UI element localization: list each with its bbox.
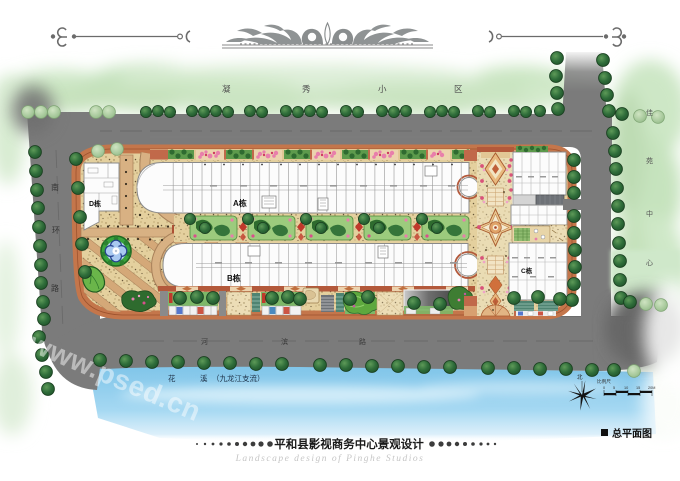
- svg-text:北: 北: [577, 373, 583, 381]
- svg-text:Landscape design of Pinghe Stu: Landscape design of Pinghe Studios: [235, 453, 425, 464]
- svg-text:溪: 溪: [200, 373, 208, 383]
- svg-text:区: 区: [454, 84, 463, 94]
- svg-text:路: 路: [51, 283, 59, 293]
- svg-text:10: 10: [624, 386, 628, 390]
- svg-text:佳: 佳: [646, 108, 653, 117]
- svg-text:中: 中: [646, 209, 653, 218]
- svg-text:（九龙江支流）: （九龙江支流）: [212, 373, 265, 383]
- svg-text:滨: 滨: [281, 337, 288, 346]
- svg-text:南: 南: [51, 182, 59, 192]
- svg-text:路: 路: [359, 337, 366, 346]
- svg-text:总平面图: 总平面图: [612, 427, 652, 440]
- svg-text:平和县影视商务中心景观设计: 平和县影视商务中心景观设计: [274, 437, 424, 451]
- svg-text:比例尺: 比例尺: [597, 378, 611, 385]
- svg-text:秀: 秀: [302, 84, 311, 94]
- svg-text:B栋: B栋: [227, 273, 241, 283]
- svg-text:心: 心: [646, 259, 653, 267]
- svg-text:小: 小: [378, 84, 387, 94]
- svg-text:D栋: D栋: [89, 199, 101, 208]
- svg-text:5: 5: [613, 386, 615, 390]
- svg-text:0: 0: [603, 386, 605, 390]
- svg-text:C栋: C栋: [521, 266, 533, 275]
- svg-text:花: 花: [168, 373, 176, 383]
- svg-text:环: 环: [52, 226, 60, 235]
- svg-text:A栋: A栋: [233, 198, 247, 208]
- svg-text:苑: 苑: [646, 156, 653, 165]
- svg-text:凝: 凝: [222, 84, 231, 94]
- svg-text:15: 15: [636, 386, 640, 390]
- svg-text:20M: 20M: [648, 386, 655, 390]
- svg-text:河: 河: [201, 338, 208, 346]
